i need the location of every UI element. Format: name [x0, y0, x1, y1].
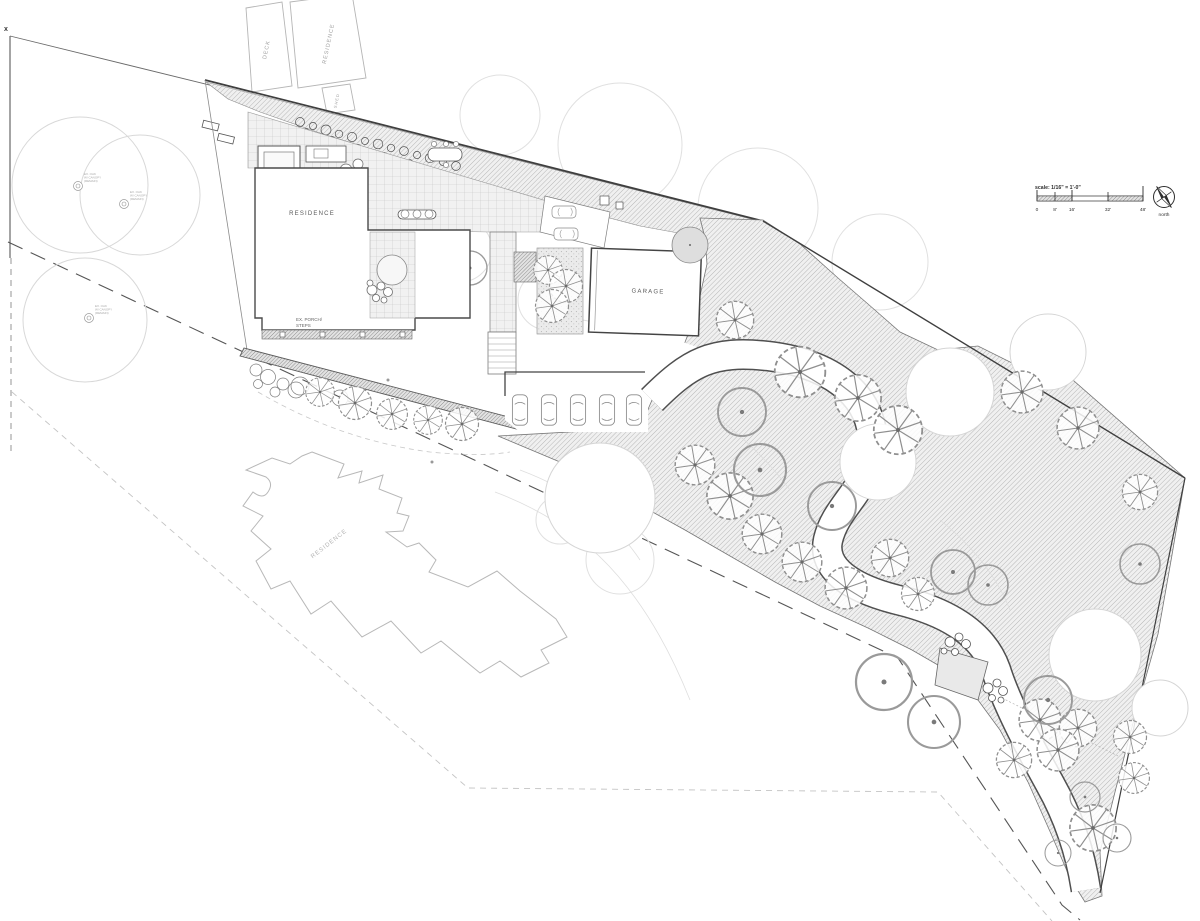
tree-label: (REMAIN): [130, 197, 144, 201]
walkway: [490, 232, 516, 332]
tree-trunk-marker: EX. OAK W/ CANOPY (REMAIN): [74, 172, 102, 191]
main-residence-label: RESIDENCE: [289, 211, 335, 217]
site-plan-drawing: x EX. OAK W/ CANOPY (REMAIN) EX. OAK W/ …: [0, 0, 1200, 921]
existing-canopies-west: [12, 117, 200, 382]
equipment-pad: [616, 202, 623, 209]
walkway-steps: [488, 332, 516, 374]
north-label: north: [1159, 212, 1170, 218]
boundary-steps: [200, 120, 237, 144]
site-plan-sheet: x EX. OAK W/ CANOPY (REMAIN) EX. OAK W/ …: [0, 0, 1200, 921]
dining-table: [428, 148, 462, 161]
patio-table: [377, 255, 407, 285]
scale-tick-0: 0: [1036, 207, 1039, 213]
ex-porch-label-line1: EX. PORCH/: [296, 317, 323, 322]
north-arrow-icon: [1149, 181, 1179, 213]
neighbor-residence-bottom: RESIDENCE: [243, 452, 567, 677]
boundary-corner-marker: x: [4, 26, 8, 33]
neighbor-residence-bottom-outline: [243, 452, 567, 677]
tree-label: (REMAIN): [84, 179, 98, 183]
legend: scale: 1/16" = 1'-0" 0 8' 16' 32' 48': [1035, 181, 1179, 218]
terrace-steps: [514, 252, 536, 282]
scale-label: scale: 1/16" = 1'-0": [1035, 185, 1081, 191]
scale-tick-16: 16': [1069, 207, 1075, 213]
site-west-edge: [205, 80, 247, 350]
garage-label: GARAGE: [631, 289, 664, 296]
scale-tick-48: 48': [1140, 207, 1146, 213]
scale-tick-32: 32': [1105, 207, 1111, 213]
ex-porch-label-line2: STEPS: [296, 323, 311, 328]
outdoor-fireplace: [306, 146, 346, 162]
scale-tick-8: 8': [1053, 207, 1057, 213]
equipment-pad: [600, 196, 609, 205]
tree-trunk-marker: EX. OAK W/ CANOPY (REMAIN): [120, 190, 148, 209]
tree-trunk-marker: EX. OAK W/ CANOPY (REMAIN): [85, 304, 113, 323]
tree-label: (REMAIN): [95, 311, 109, 315]
